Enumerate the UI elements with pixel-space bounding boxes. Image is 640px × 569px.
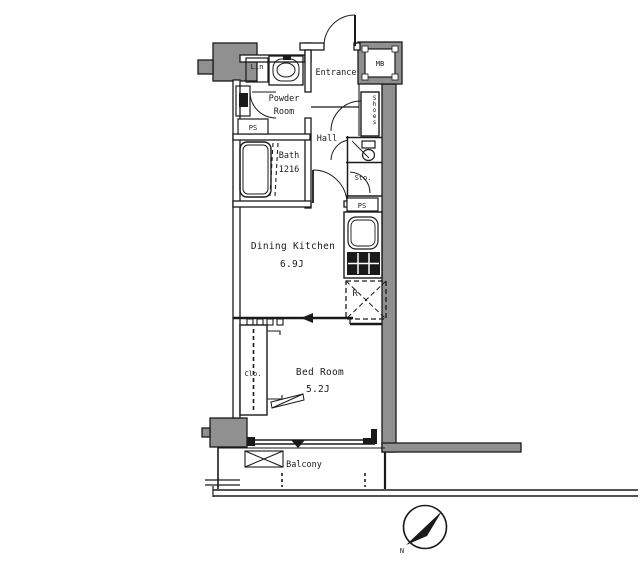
bed-room-label: Bed Room — [296, 367, 344, 378]
floorplan-drawing: N Lin Powder Room Entrance MB Hall PS Ba… — [0, 0, 640, 569]
dk-door — [313, 170, 347, 204]
powder-room-label-1: Powder — [269, 94, 300, 104]
balcony-area — [205, 447, 638, 497]
compass-needle — [406, 511, 442, 545]
pipe-space-left-label: PS — [249, 124, 257, 132]
storage-label: Sto. — [355, 174, 372, 182]
wall-entrance-top-left — [300, 43, 324, 50]
wall-stub-bottom-left — [202, 428, 210, 437]
wall-stub-top-left — [198, 60, 213, 74]
stove-icon — [347, 252, 380, 275]
wall-right — [382, 84, 396, 452]
toilet-room — [331, 140, 375, 161]
bathtub-icon — [240, 142, 271, 197]
refrigerator-box — [346, 281, 386, 319]
bed-room-area: 5.2J — [306, 384, 330, 395]
closet-label: Clo. — [245, 370, 262, 378]
powder-room-label-2: Room — [274, 107, 294, 117]
dining-kitchen-label: Dining Kitchen — [251, 241, 335, 252]
bath-size-label: 1216 — [279, 165, 299, 175]
wall-powder-right-lower — [305, 118, 311, 208]
sliding-door-arrow — [301, 313, 313, 323]
refrigerator-label: R — [352, 289, 358, 299]
balcony-hatch-box — [245, 451, 283, 467]
entrance-label: Entrance — [316, 68, 357, 78]
kitchen — [344, 212, 386, 319]
wall-bath-bottom — [233, 201, 311, 207]
pipe-space-right-label: PS — [358, 202, 366, 210]
compass-icon: N — [400, 506, 447, 556]
shoe-box-label: Shoes — [363, 95, 378, 135]
bath-label: Bath — [279, 151, 299, 161]
bath-area — [240, 142, 278, 197]
dining-kitchen-area: 6.9J — [280, 259, 304, 270]
wall-bottom-right — [382, 443, 521, 452]
floorplan-canvas: N Lin Powder Room Entrance MB Hall PS Ba… — [0, 0, 640, 569]
hall-door-arc — [331, 101, 361, 131]
wall-powder-right-upper — [305, 50, 311, 92]
front-door-arc — [324, 15, 355, 46]
wall-block-bottom-left — [210, 418, 247, 447]
wall-bath-top — [233, 134, 310, 140]
balcony-label: Balcony — [286, 460, 322, 470]
linen-label: Lin — [251, 63, 264, 71]
meter-box-label: MB — [376, 60, 384, 68]
open-door-leaf — [271, 394, 304, 408]
hall-label: Hall — [317, 134, 337, 144]
balcony-railing — [205, 480, 638, 497]
closet-folding-door-teeth — [247, 319, 283, 325]
compass-north-label: N — [400, 547, 404, 555]
